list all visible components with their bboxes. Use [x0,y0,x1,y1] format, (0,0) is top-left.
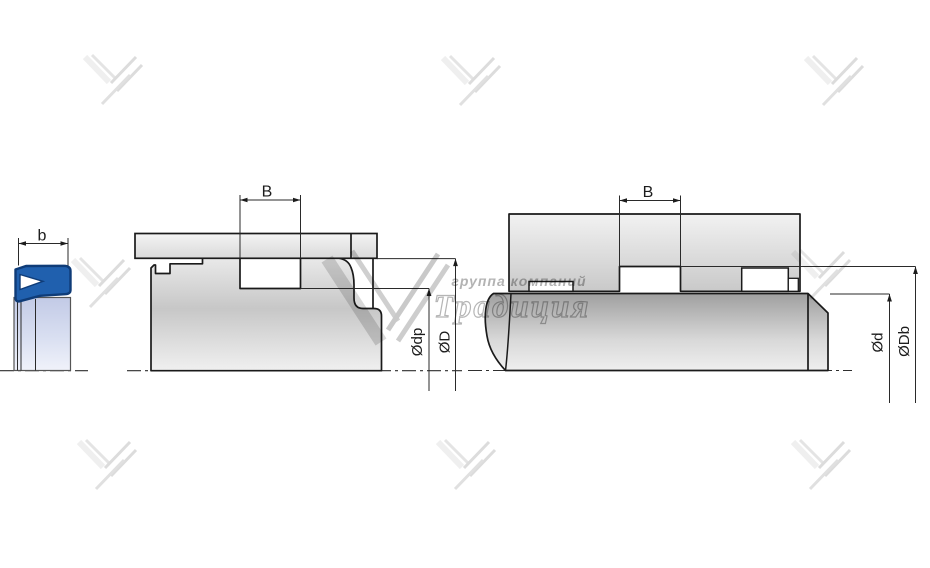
arrow-left [240,198,248,203]
chevron-watermark [73,258,130,307]
chevron-watermark [443,56,500,105]
chevron-watermark [438,440,495,489]
dimension-label-B: B [262,184,273,201]
dimension-label-Od: Ød [870,332,887,352]
rod-column [14,298,71,371]
arrow-up [913,267,918,275]
arrow-left [19,241,27,246]
arrow-up [887,294,892,302]
piston-profile [151,258,382,370]
housing-groove-right [742,268,789,291]
dimension-label-b: b [38,228,47,245]
housing-groove-step [788,278,798,291]
chevron-watermark [79,440,136,489]
dimension-label-ODb: ØDb [896,326,913,357]
watermark-company-name: Традиция [434,289,591,325]
arrow-left [620,198,628,203]
dimension-label-OD: ØD [437,331,454,354]
chevron-watermark [85,55,142,104]
arrow-right [673,198,681,203]
watermark-company-type: группа компаний [451,273,586,289]
cylinder-wall [135,234,377,259]
seal-technical-drawing: b B Ødp ØD [0,0,930,568]
arrow-right [61,241,69,246]
dimension-label-B: B [643,184,654,201]
dimension-Od: Ød [830,294,892,403]
chevron-watermark [793,440,850,489]
chevron-watermark [806,56,863,105]
arrow-right [293,198,301,203]
arrow-up [453,259,458,267]
drawing-svg: b B Ødp ØD [0,0,930,568]
figure-piston-installation: B Ødp ØD [135,184,458,392]
chevron-watermark [793,250,850,299]
dimension-b: b [19,228,69,266]
dimension-label-Odp: Ødp [409,328,426,356]
figure-seal-profile: b [14,228,71,371]
